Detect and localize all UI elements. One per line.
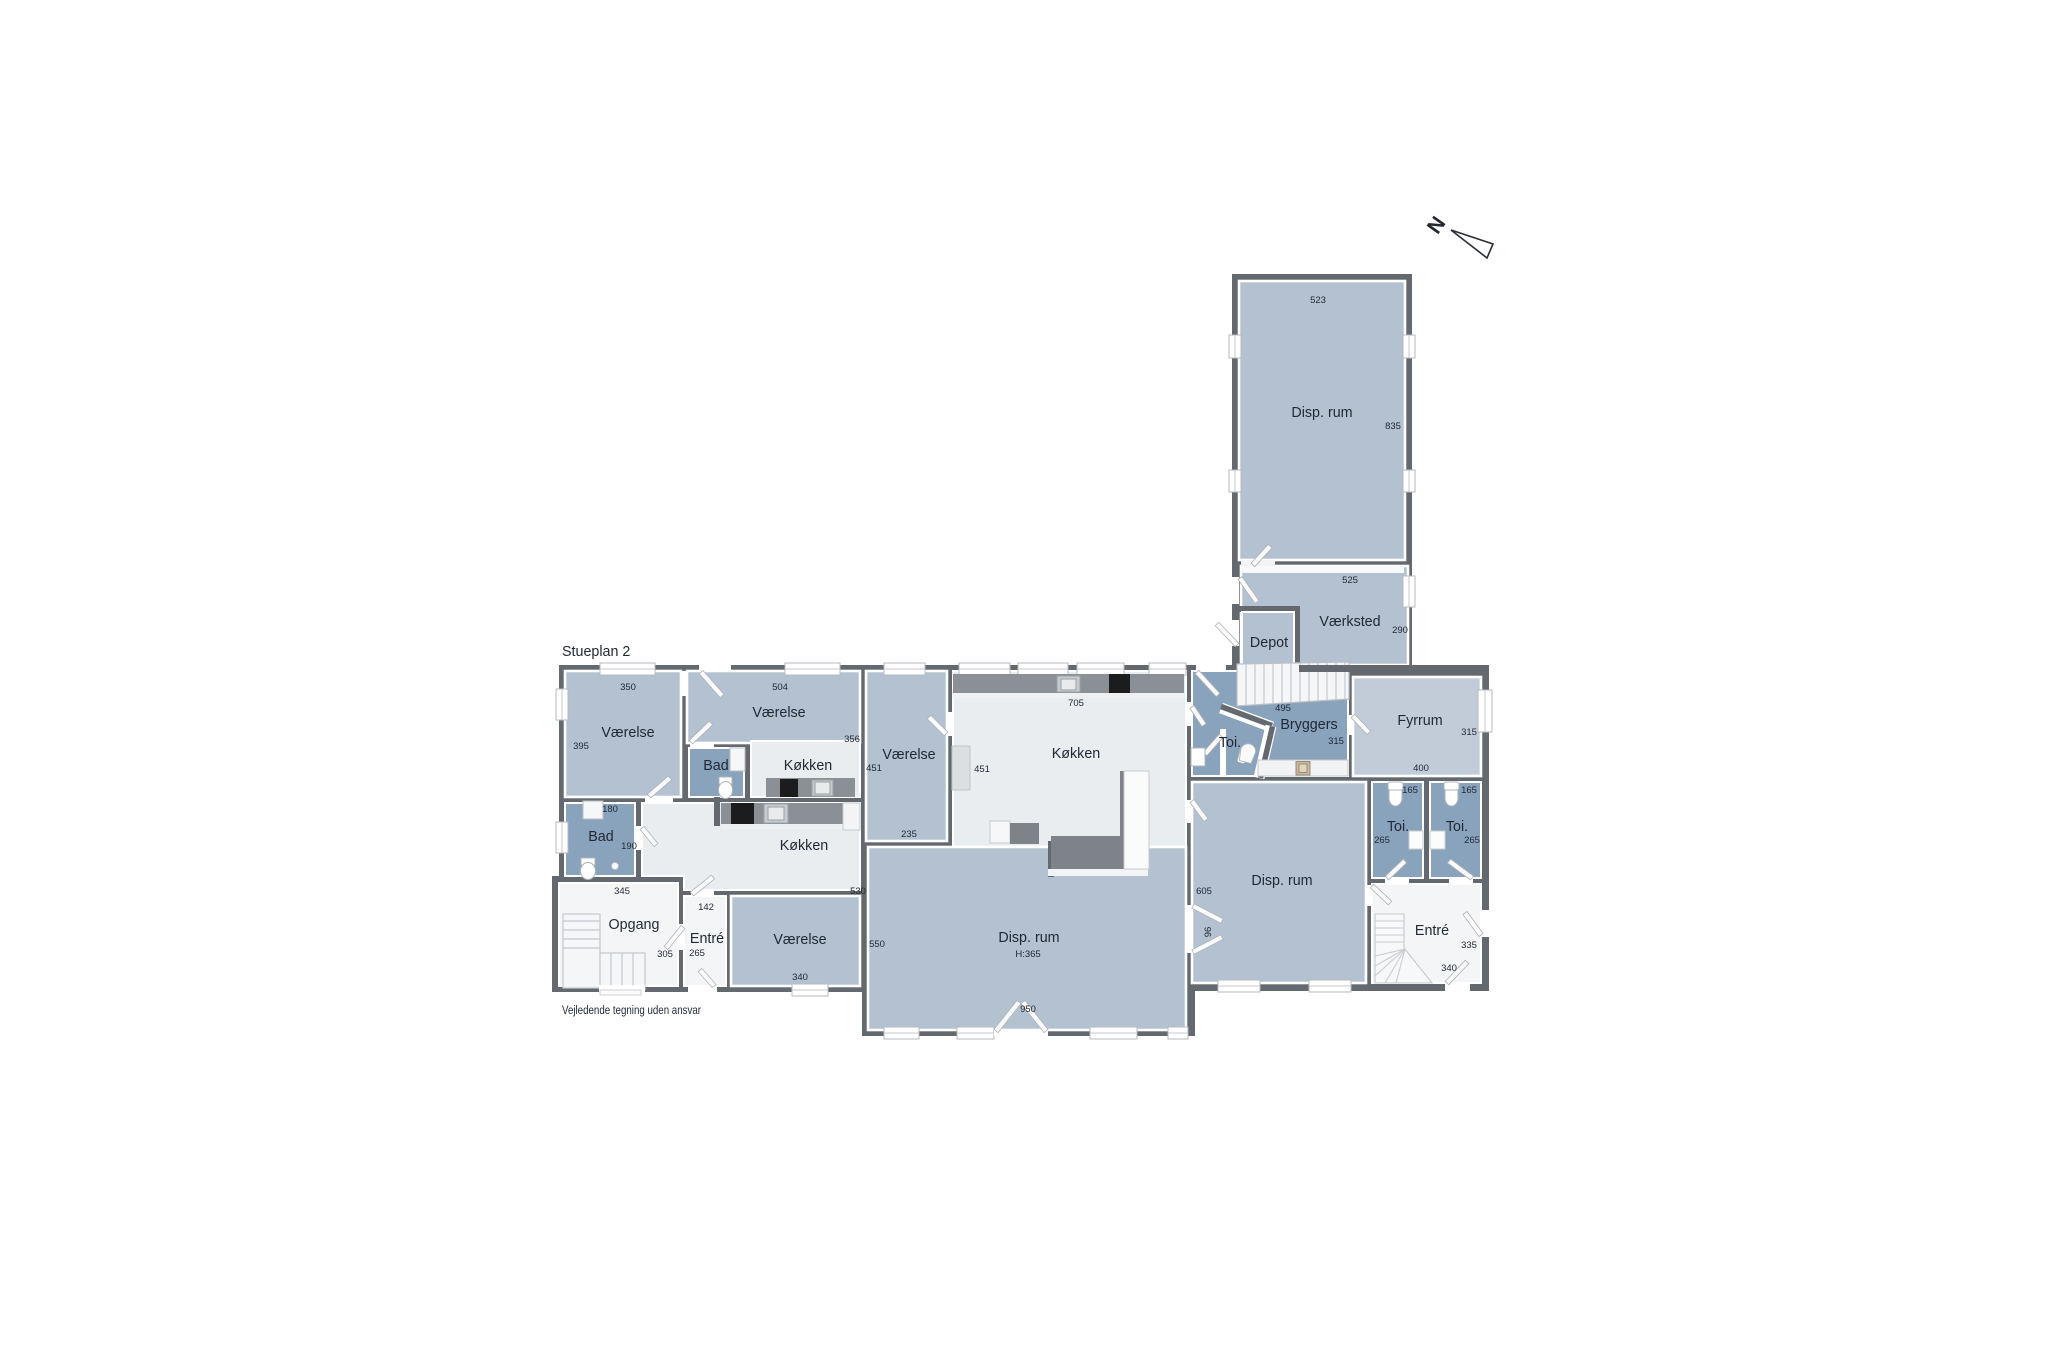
svg-text:Disp. rum: Disp. rum [1291,405,1352,421]
svg-text:705: 705 [1068,698,1084,709]
svg-text:235: 235 [901,829,917,840]
svg-text:190: 190 [621,841,637,852]
svg-text:N: N [1423,212,1451,238]
svg-text:525: 525 [1342,575,1358,586]
svg-text:165: 165 [1402,785,1418,796]
svg-text:Værelse: Værelse [882,747,935,763]
svg-text:Køkken: Køkken [1052,746,1101,762]
svg-text:523: 523 [1310,295,1326,306]
svg-text:335: 335 [1461,940,1477,951]
svg-text:530: 530 [850,886,866,897]
svg-text:605: 605 [1196,886,1212,897]
svg-text:Disp. rum: Disp. rum [998,930,1059,946]
svg-text:Køkken: Køkken [784,758,833,774]
svg-text:400: 400 [1413,763,1429,774]
svg-text:340: 340 [1441,963,1457,974]
svg-text:Værelse: Værelse [752,705,805,721]
svg-text:290: 290 [1392,625,1408,636]
svg-text:451: 451 [974,764,990,775]
svg-text:356: 356 [844,734,860,745]
svg-text:950: 950 [1020,1004,1036,1015]
svg-text:Toi.: Toi. [1387,819,1409,835]
svg-text:835: 835 [1385,421,1401,432]
svg-text:Bryggers: Bryggers [1280,717,1337,733]
svg-text:Opgang: Opgang [609,917,660,933]
svg-text:350: 350 [620,682,636,693]
svg-text:345: 345 [614,886,630,897]
svg-text:Fyrrum: Fyrrum [1397,713,1442,729]
svg-text:Toi.: Toi. [1219,735,1241,751]
svg-text:Disp. rum: Disp. rum [1251,873,1312,889]
svg-text:165: 165 [1461,785,1477,796]
svg-text:495: 495 [1275,703,1291,714]
svg-text:Stueplan 2: Stueplan 2 [562,644,630,660]
svg-text:Toi.: Toi. [1446,819,1468,835]
svg-text:504: 504 [772,682,788,693]
svg-text:Depot: Depot [1250,635,1288,651]
svg-text:265: 265 [1464,835,1480,846]
svg-text:Entré: Entré [690,931,724,947]
svg-text:Værelse: Værelse [773,932,826,948]
svg-text:Værksted: Værksted [1319,614,1380,630]
svg-text:340: 340 [792,972,808,983]
svg-text:Værelse: Værelse [601,725,654,741]
svg-text:Vejledende tegning uden ansvar: Vejledende tegning uden ansvar [562,1003,701,1017]
svg-text:315: 315 [1461,727,1477,738]
svg-text:Køkken: Køkken [780,838,829,854]
svg-text:180: 180 [602,804,618,815]
svg-text:Bad: Bad [703,758,728,774]
svg-text:550: 550 [869,939,885,950]
svg-text:Bad: Bad [588,829,613,845]
svg-text:96: 96 [1203,927,1214,938]
svg-text:265: 265 [1374,835,1390,846]
svg-text:305: 305 [657,949,673,960]
svg-text:265: 265 [689,948,705,959]
svg-text:H:365: H:365 [1015,949,1040,960]
svg-text:315: 315 [1328,736,1344,747]
svg-text:395: 395 [573,741,589,752]
svg-text:142: 142 [698,902,714,913]
svg-text:451: 451 [866,763,882,774]
svg-text:Entré: Entré [1415,923,1449,939]
